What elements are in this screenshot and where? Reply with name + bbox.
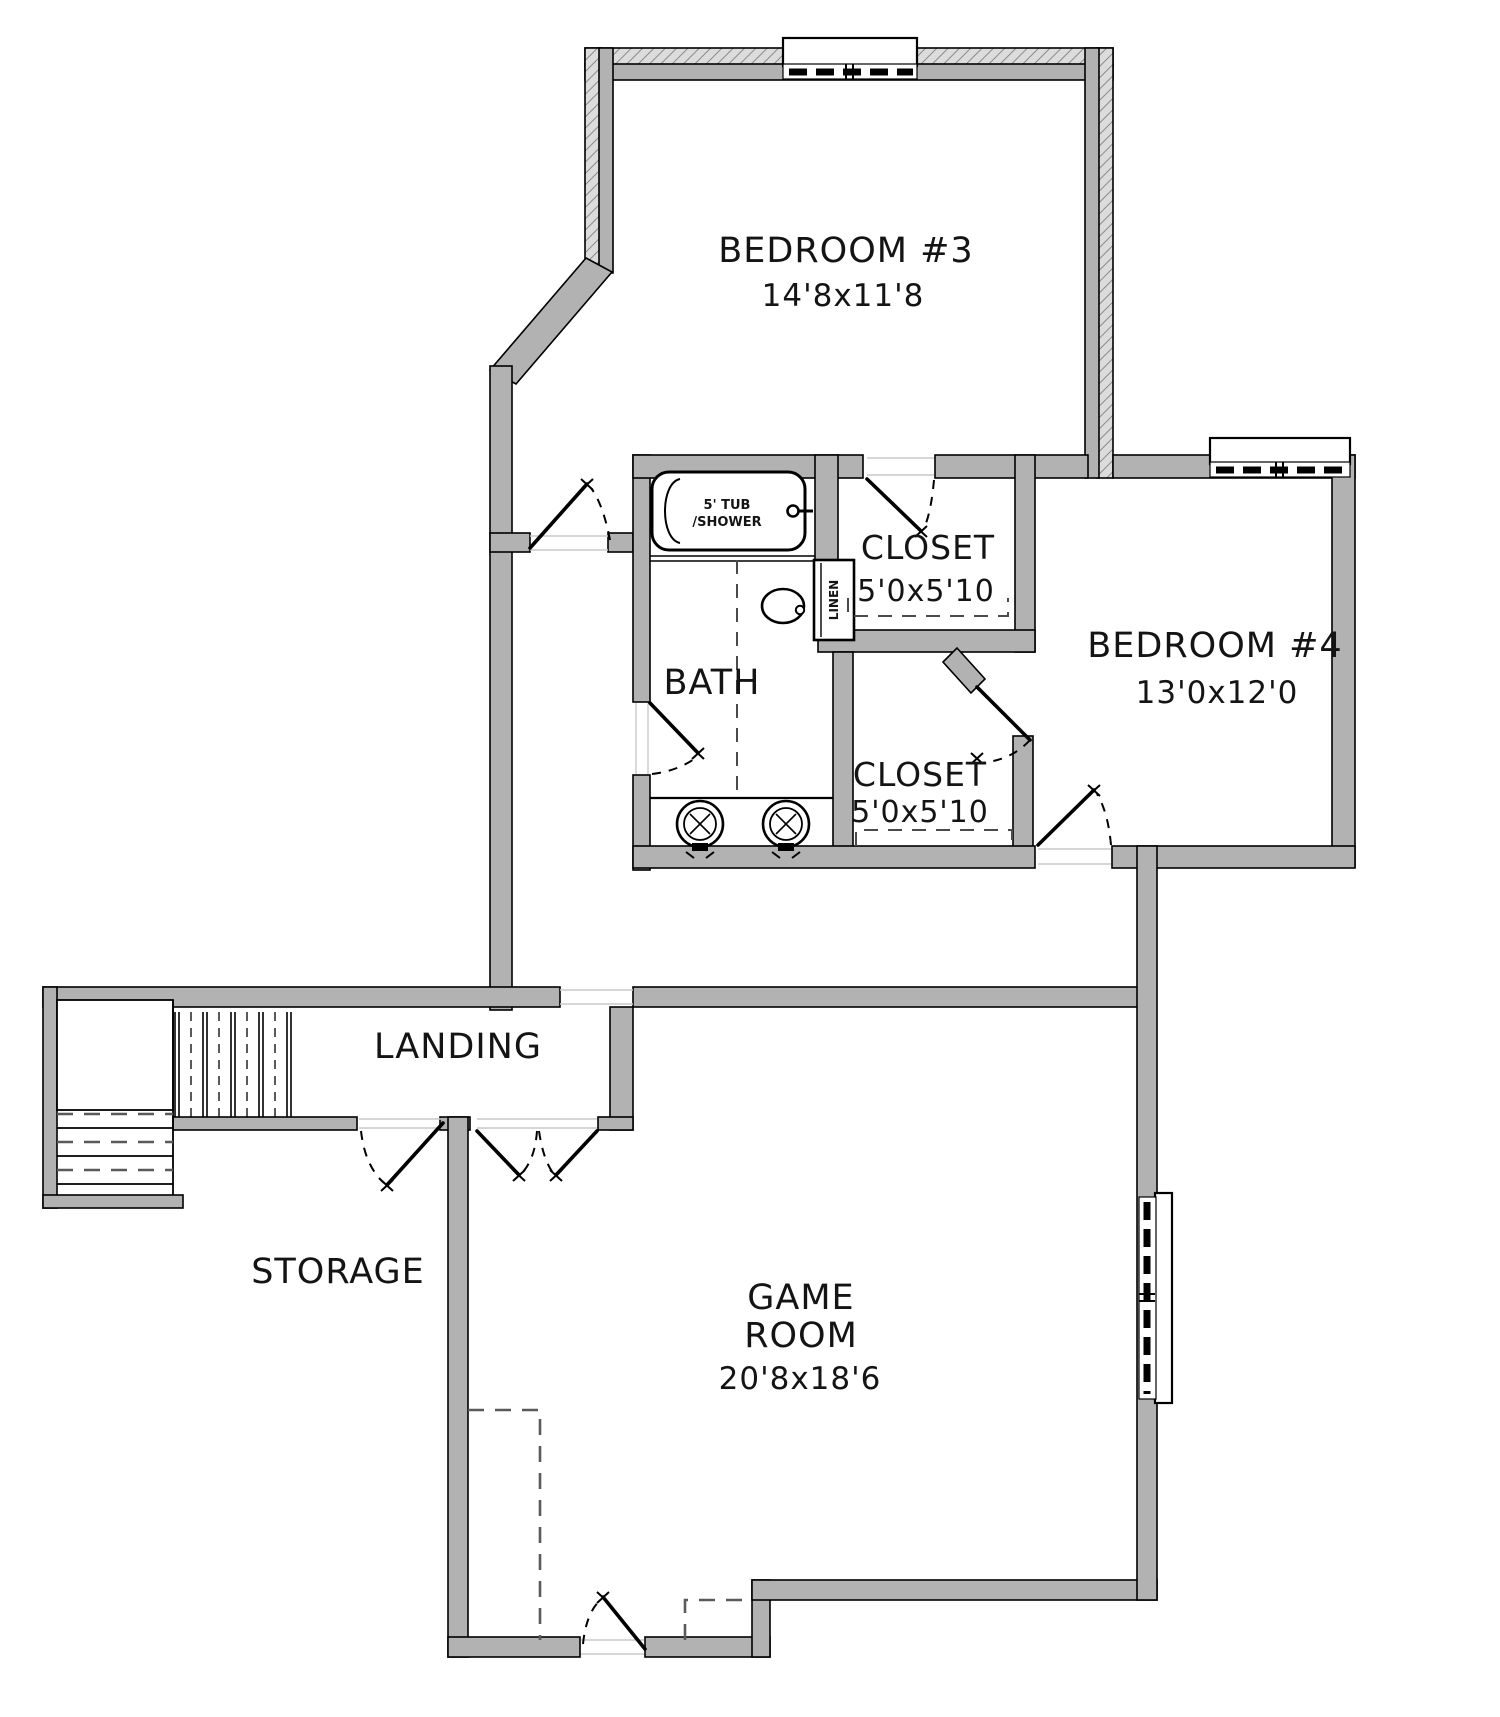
- bedroom4-label: BEDROOM #4: [1087, 626, 1342, 666]
- toilet: [762, 589, 804, 623]
- walls: [43, 48, 1355, 1657]
- tub-label-line2: /SHOWER: [692, 515, 761, 530]
- wall-chamfer-bedroom3: [490, 258, 612, 384]
- wall-game-room-riser: [610, 1007, 633, 1130]
- game-room-kneewall-dashed-left: [468, 1410, 540, 1640]
- wall-stair-left: [43, 987, 57, 1208]
- stairs: [57, 1000, 291, 1195]
- stair-treads-lower: [57, 1114, 173, 1184]
- closet1-label: CLOSET: [861, 528, 995, 567]
- closet2-label: CLOSET: [853, 755, 987, 794]
- closet2-dims: 5'0x5'10: [851, 795, 989, 830]
- floor-plan-page: LINEN: [0, 0, 1500, 1717]
- door-bedroom3: [530, 479, 610, 548]
- door-game-room-right: [539, 1131, 597, 1181]
- stair-treads-upper: [175, 1012, 291, 1117]
- wall-storage-game-divider: [448, 1117, 468, 1657]
- wall-bedroom3-door-left-stub: [490, 533, 530, 552]
- exterior-wall-left: [599, 48, 613, 273]
- game-room-label-line2: ROOM: [744, 1316, 858, 1356]
- landing-label: LANDING: [374, 1027, 542, 1067]
- wall-stair-bottom: [43, 1195, 183, 1208]
- wall-landing-south: [173, 1117, 357, 1130]
- bedroom3-label: BEDROOM #3: [718, 231, 973, 271]
- door-bedroom4: [1038, 785, 1111, 845]
- wall-hall-left: [490, 366, 512, 1010]
- wall-bedroom3-door-right-stub: [608, 533, 633, 552]
- game-room-label-line1: GAME: [747, 1278, 854, 1318]
- door-storage: [361, 1123, 443, 1191]
- bedroom3-dims: 14'8x11'8: [762, 278, 925, 314]
- window-bedroom4: [1210, 438, 1350, 477]
- game-room-dims: 20'8x18'6: [719, 1361, 882, 1397]
- tub-label-line1: 5' TUB: [704, 498, 751, 513]
- bath-label: BATH: [664, 663, 761, 703]
- stair-void: [57, 1000, 173, 1110]
- exterior-wall-right: [1085, 48, 1099, 478]
- window-game-room: [1139, 1193, 1172, 1403]
- wall-closet2-left: [833, 652, 853, 848]
- wall-game-bottom-right: [752, 1580, 1157, 1600]
- wall-closet1-top: [935, 455, 1088, 478]
- wall-landing-top-right: [633, 987, 1140, 1007]
- game-room-kneewall-dashed-right: [685, 1600, 752, 1640]
- floor-plan: LINEN: [0, 0, 1500, 1717]
- wall-closet1-bedroom4-divider: [1015, 455, 1035, 652]
- window-bedroom3: [783, 38, 917, 79]
- wall-bath-left-upper: [633, 455, 650, 702]
- wall-tub-closet1-divider: [815, 455, 838, 563]
- closet2-rod-dashed: [856, 830, 1012, 846]
- closet1-dims: 5'0x5'10: [857, 574, 995, 609]
- wall-landing-south-post-right: [598, 1117, 633, 1130]
- bedroom4-dims: 13'0x12'0: [1136, 675, 1299, 711]
- linen-label: LINEN: [827, 580, 841, 620]
- storage-label: STORAGE: [251, 1252, 425, 1292]
- door-bath: [650, 703, 704, 774]
- wall-game-bottom-left: [448, 1637, 580, 1657]
- door-game-room-left: [477, 1131, 537, 1181]
